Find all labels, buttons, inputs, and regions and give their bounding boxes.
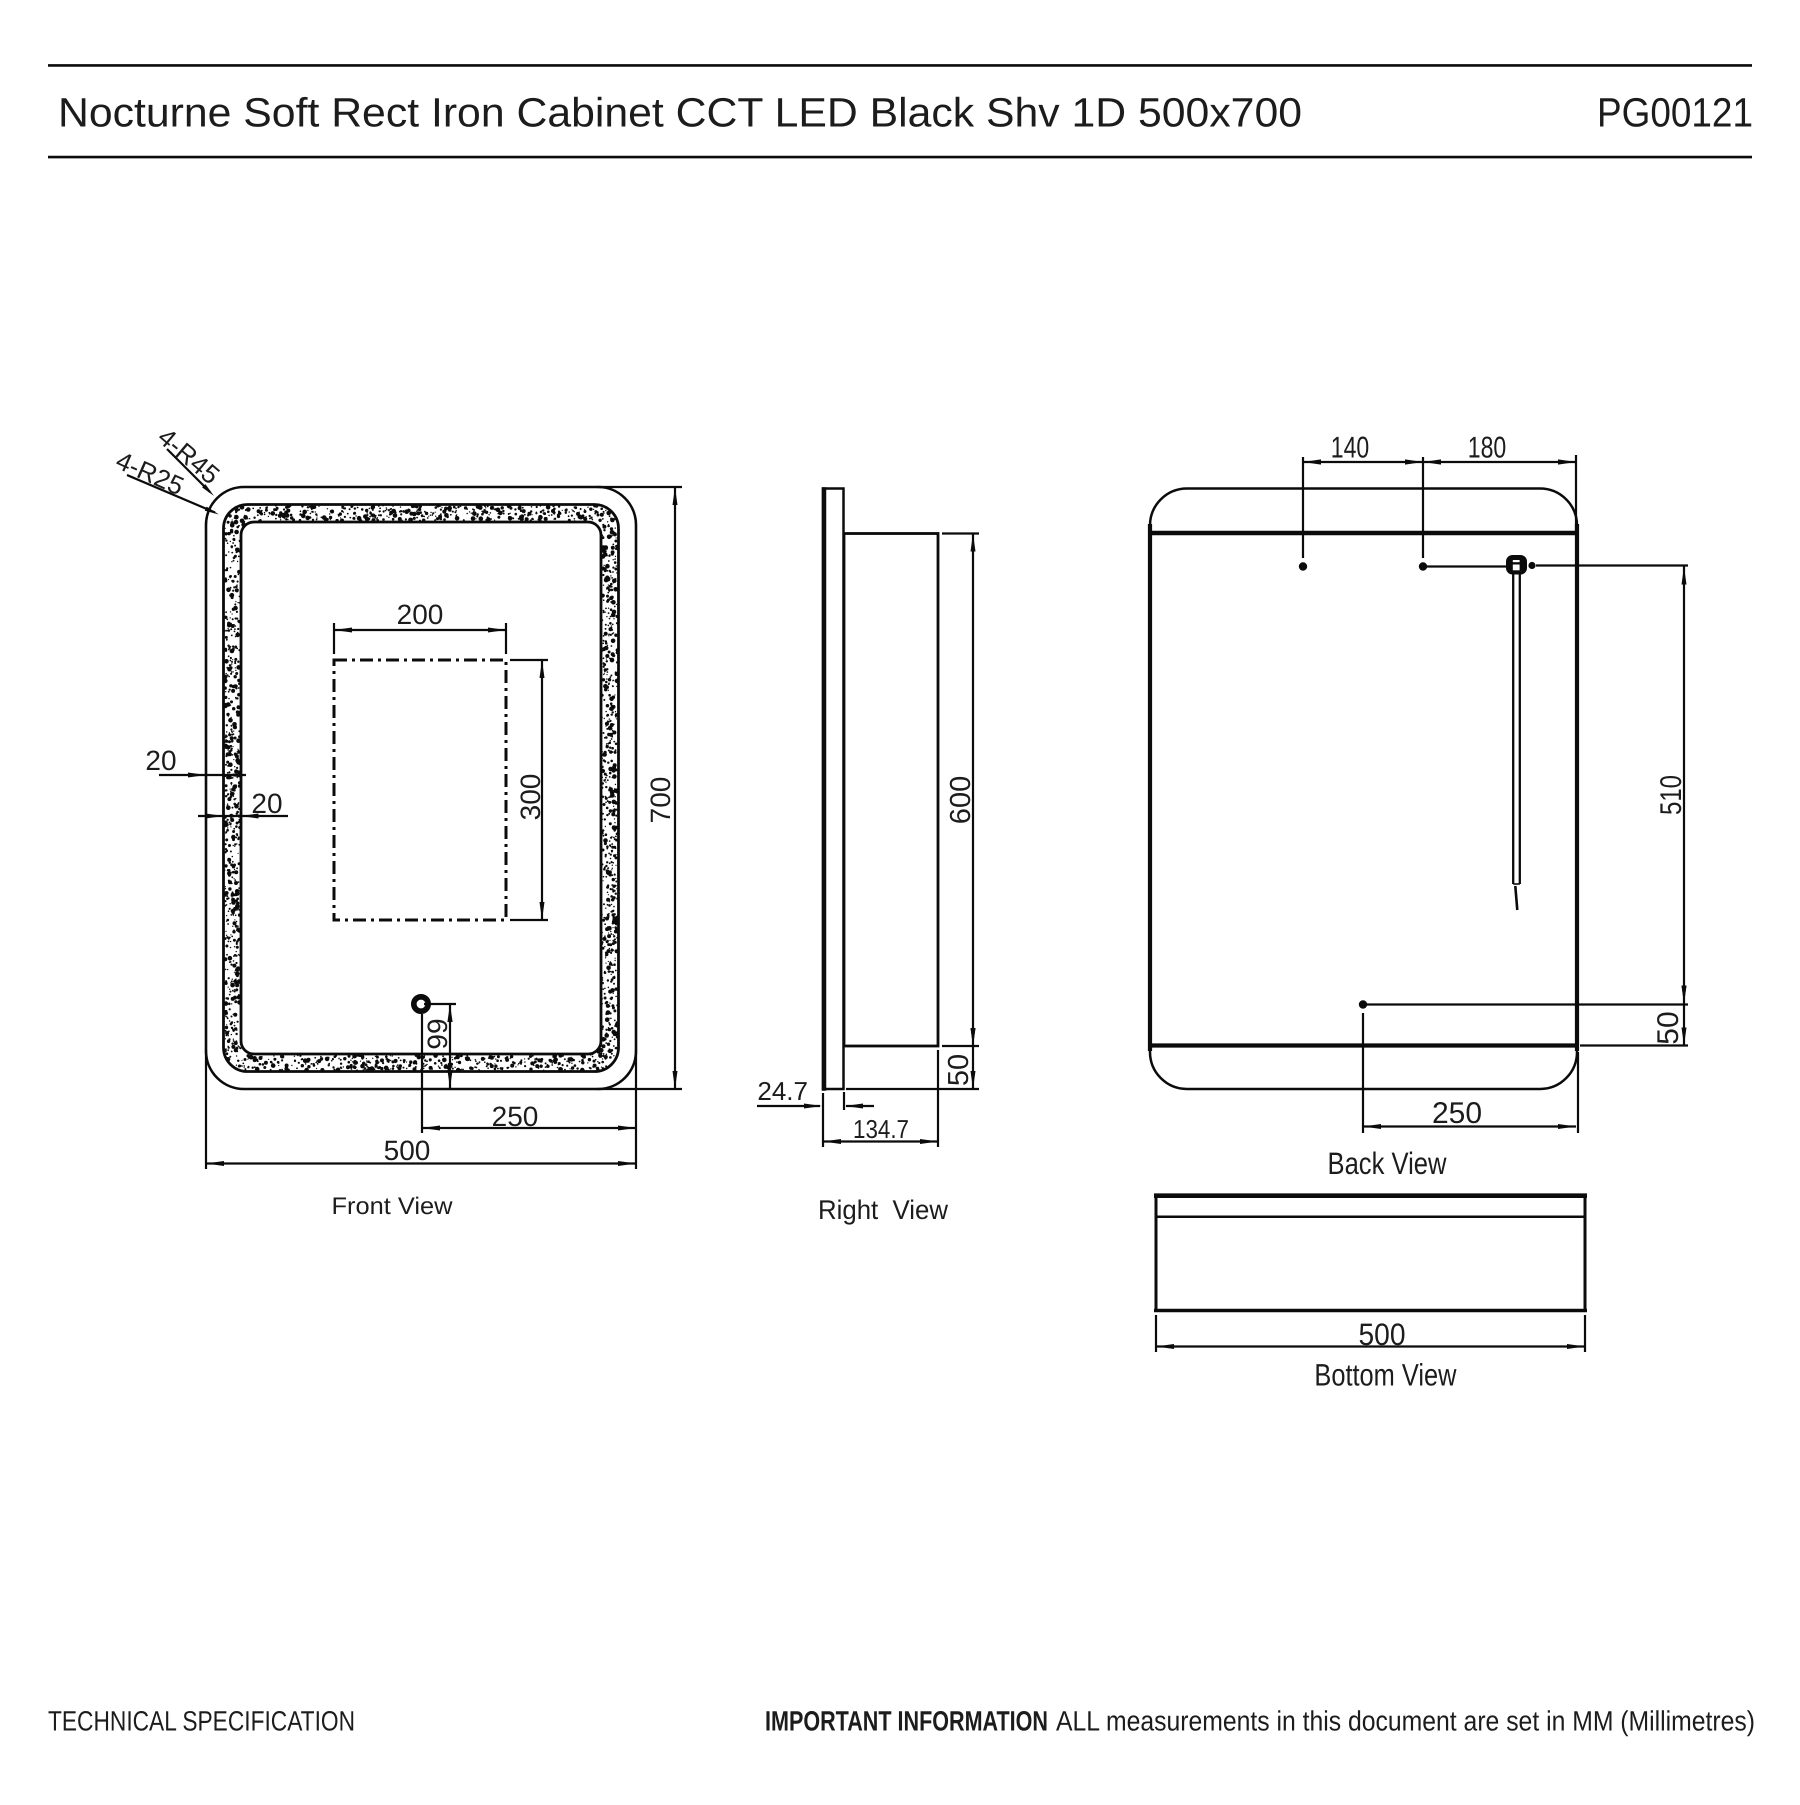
svg-text:Bottom View: Bottom View: [1314, 1358, 1457, 1393]
svg-text:250: 250: [492, 1101, 539, 1132]
svg-text:20: 20: [145, 745, 176, 776]
svg-text:300: 300: [515, 774, 546, 821]
svg-text:180: 180: [1468, 432, 1507, 465]
svg-text:Right View: Right View: [818, 1195, 948, 1225]
svg-text:Back View: Back View: [1328, 1146, 1447, 1181]
svg-text:140: 140: [1331, 432, 1370, 465]
svg-text:510: 510: [1655, 775, 1688, 815]
svg-text:TECHNICAL SPECIFICATION: TECHNICAL SPECIFICATION: [48, 1706, 355, 1737]
svg-text:500: 500: [384, 1135, 431, 1166]
svg-text:134.7: 134.7: [853, 1114, 909, 1144]
svg-text:PG00121: PG00121: [1597, 90, 1753, 136]
svg-text:24.7: 24.7: [757, 1076, 808, 1106]
svg-text:500: 500: [1359, 1317, 1406, 1352]
svg-text:250: 250: [1432, 1097, 1482, 1130]
svg-text:Nocturne Soft Rect Iron Cabine: Nocturne Soft Rect Iron Cabinet CCT LED …: [58, 90, 1302, 136]
svg-text:200: 200: [397, 599, 444, 630]
svg-text:600: 600: [945, 776, 977, 824]
svg-text:ALL measurements in this docum: ALL measurements in this document are se…: [1056, 1706, 1755, 1737]
svg-text:20: 20: [251, 788, 282, 819]
svg-text:700: 700: [645, 777, 676, 824]
svg-text:IMPORTANT INFORMATION: IMPORTANT INFORMATION: [765, 1706, 1048, 1737]
svg-text:50: 50: [1652, 1011, 1685, 1044]
svg-text:99: 99: [422, 1018, 453, 1049]
svg-text:50: 50: [943, 1054, 975, 1086]
svg-text:Front View: Front View: [332, 1193, 454, 1220]
